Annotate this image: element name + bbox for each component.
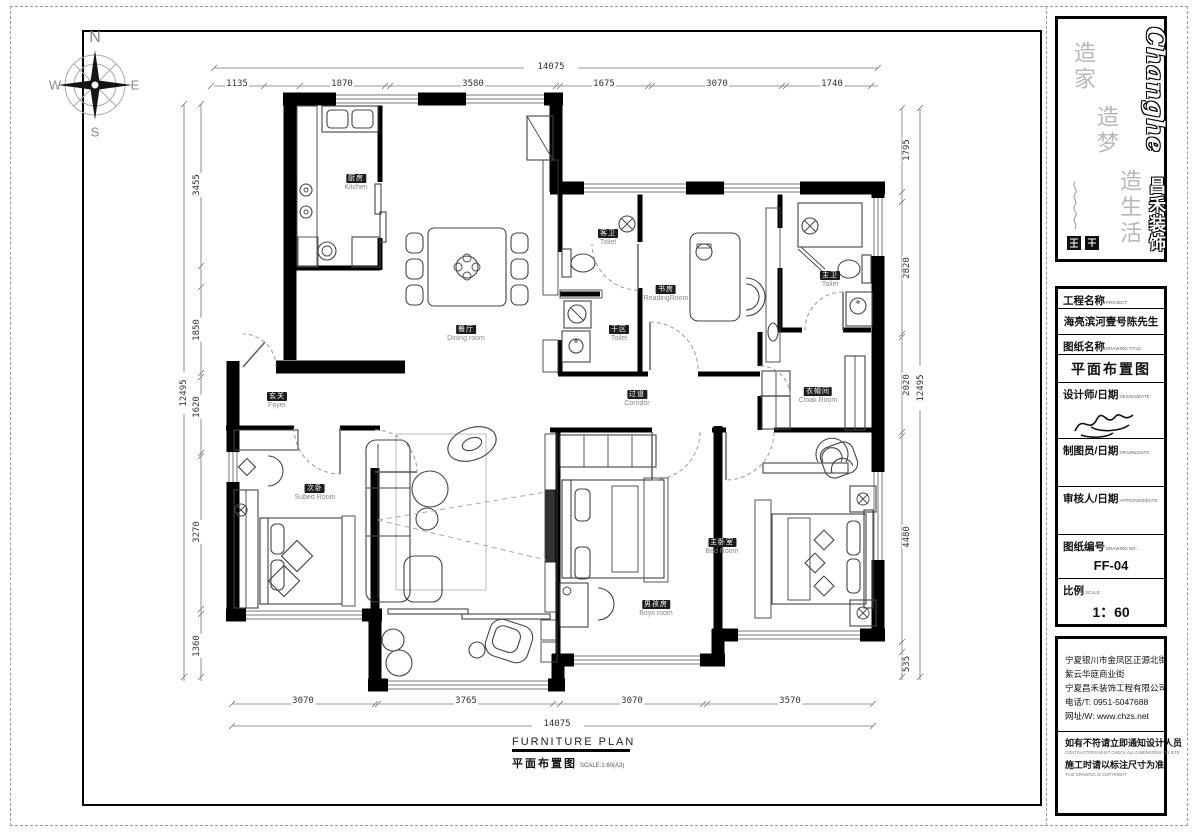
dim-bottom-2: 3765: [454, 696, 478, 706]
room-label-cloak-room: 衣帽间Cloak Room: [799, 387, 838, 405]
room-label-subed-room: 次卧Subed Room: [295, 484, 336, 502]
dim-top-total: 14075: [536, 62, 565, 72]
floor-plan-drawing: [0, 0, 1200, 833]
compass-west-label: W: [49, 78, 61, 93]
dim-left-3: 1620: [192, 395, 202, 419]
drawing-title-scale: SCALE:1:60(A3): [580, 763, 624, 769]
dim-left-4: 3270: [192, 520, 202, 544]
compass-north-label: N: [89, 29, 101, 47]
dim-top-3: 3580: [461, 79, 485, 89]
dim-bottom-4: 3570: [778, 696, 802, 706]
dim-bottom-1: 3070: [291, 696, 315, 706]
master-bedroom-furniture: [755, 438, 876, 626]
room-label-master-toilet: 主卫Toilet: [820, 271, 840, 289]
room-label-dry-toilet: 干区Toilet: [609, 325, 629, 343]
compass-rose-icon: [58, 50, 132, 120]
dim-right-2: 2820: [902, 256, 912, 280]
dim-right-5: 535: [902, 655, 912, 673]
dim-top-1: 1135: [225, 79, 249, 89]
master-toilet-fixtures: [798, 203, 872, 326]
compass-south-label: S: [91, 125, 100, 140]
compass-east-label: E: [131, 78, 140, 93]
dim-left-total: 12495: [179, 378, 189, 407]
dim-top-5: 3070: [705, 79, 729, 89]
subed-room-furniture: [234, 430, 355, 608]
living-room-furniture: [366, 420, 557, 676]
room-label-corridor: 过道Corridor: [624, 390, 649, 408]
dim-bottom-3: 3070: [620, 696, 644, 706]
dim-left-1: 3455: [192, 173, 202, 197]
kitchen-furniture: [297, 106, 553, 267]
drawing-title-en: FURNITURE PLAN: [512, 736, 635, 748]
dim-top-2: 1870: [330, 79, 354, 89]
dim-bottom-total: 14075: [542, 719, 571, 729]
room-label-bedroom: 主卧室Bed Room: [705, 538, 738, 556]
dim-left-5: 1360: [192, 634, 202, 658]
dim-right-3: 2020: [902, 373, 912, 397]
dim-left-2: 1850: [192, 318, 202, 342]
drawing-title-zh: 平面布置图: [512, 758, 577, 770]
dim-right-total: 12495: [916, 373, 926, 402]
drawing-title-rule: [512, 749, 630, 752]
dim-top-6: 1740: [820, 79, 844, 89]
room-label-reading-room: 书房ReadingRoom: [644, 285, 689, 303]
room-label-foyer: 玄关Foyer: [267, 392, 287, 410]
room-label-kitchen: 厨房Kitchen: [344, 174, 367, 192]
drawing-title: FURNITURE PLAN 平面布置图SCALE:1:60(A3): [512, 736, 635, 772]
room-label-dining: 餐厅Dining room: [447, 325, 485, 343]
page: N W E S 1135 1870 3580 1675 3070 1740 14…: [0, 0, 1200, 833]
reading-room-furniture: [690, 208, 780, 362]
dim-right-4: 4480: [902, 525, 912, 549]
dim-right-1: 1795: [902, 138, 912, 162]
room-label-guest-toilet: 客卫Toilet: [598, 229, 618, 247]
room-label-boys-room: 男孩房Boys room: [639, 600, 672, 618]
dim-top-4: 1675: [592, 79, 616, 89]
